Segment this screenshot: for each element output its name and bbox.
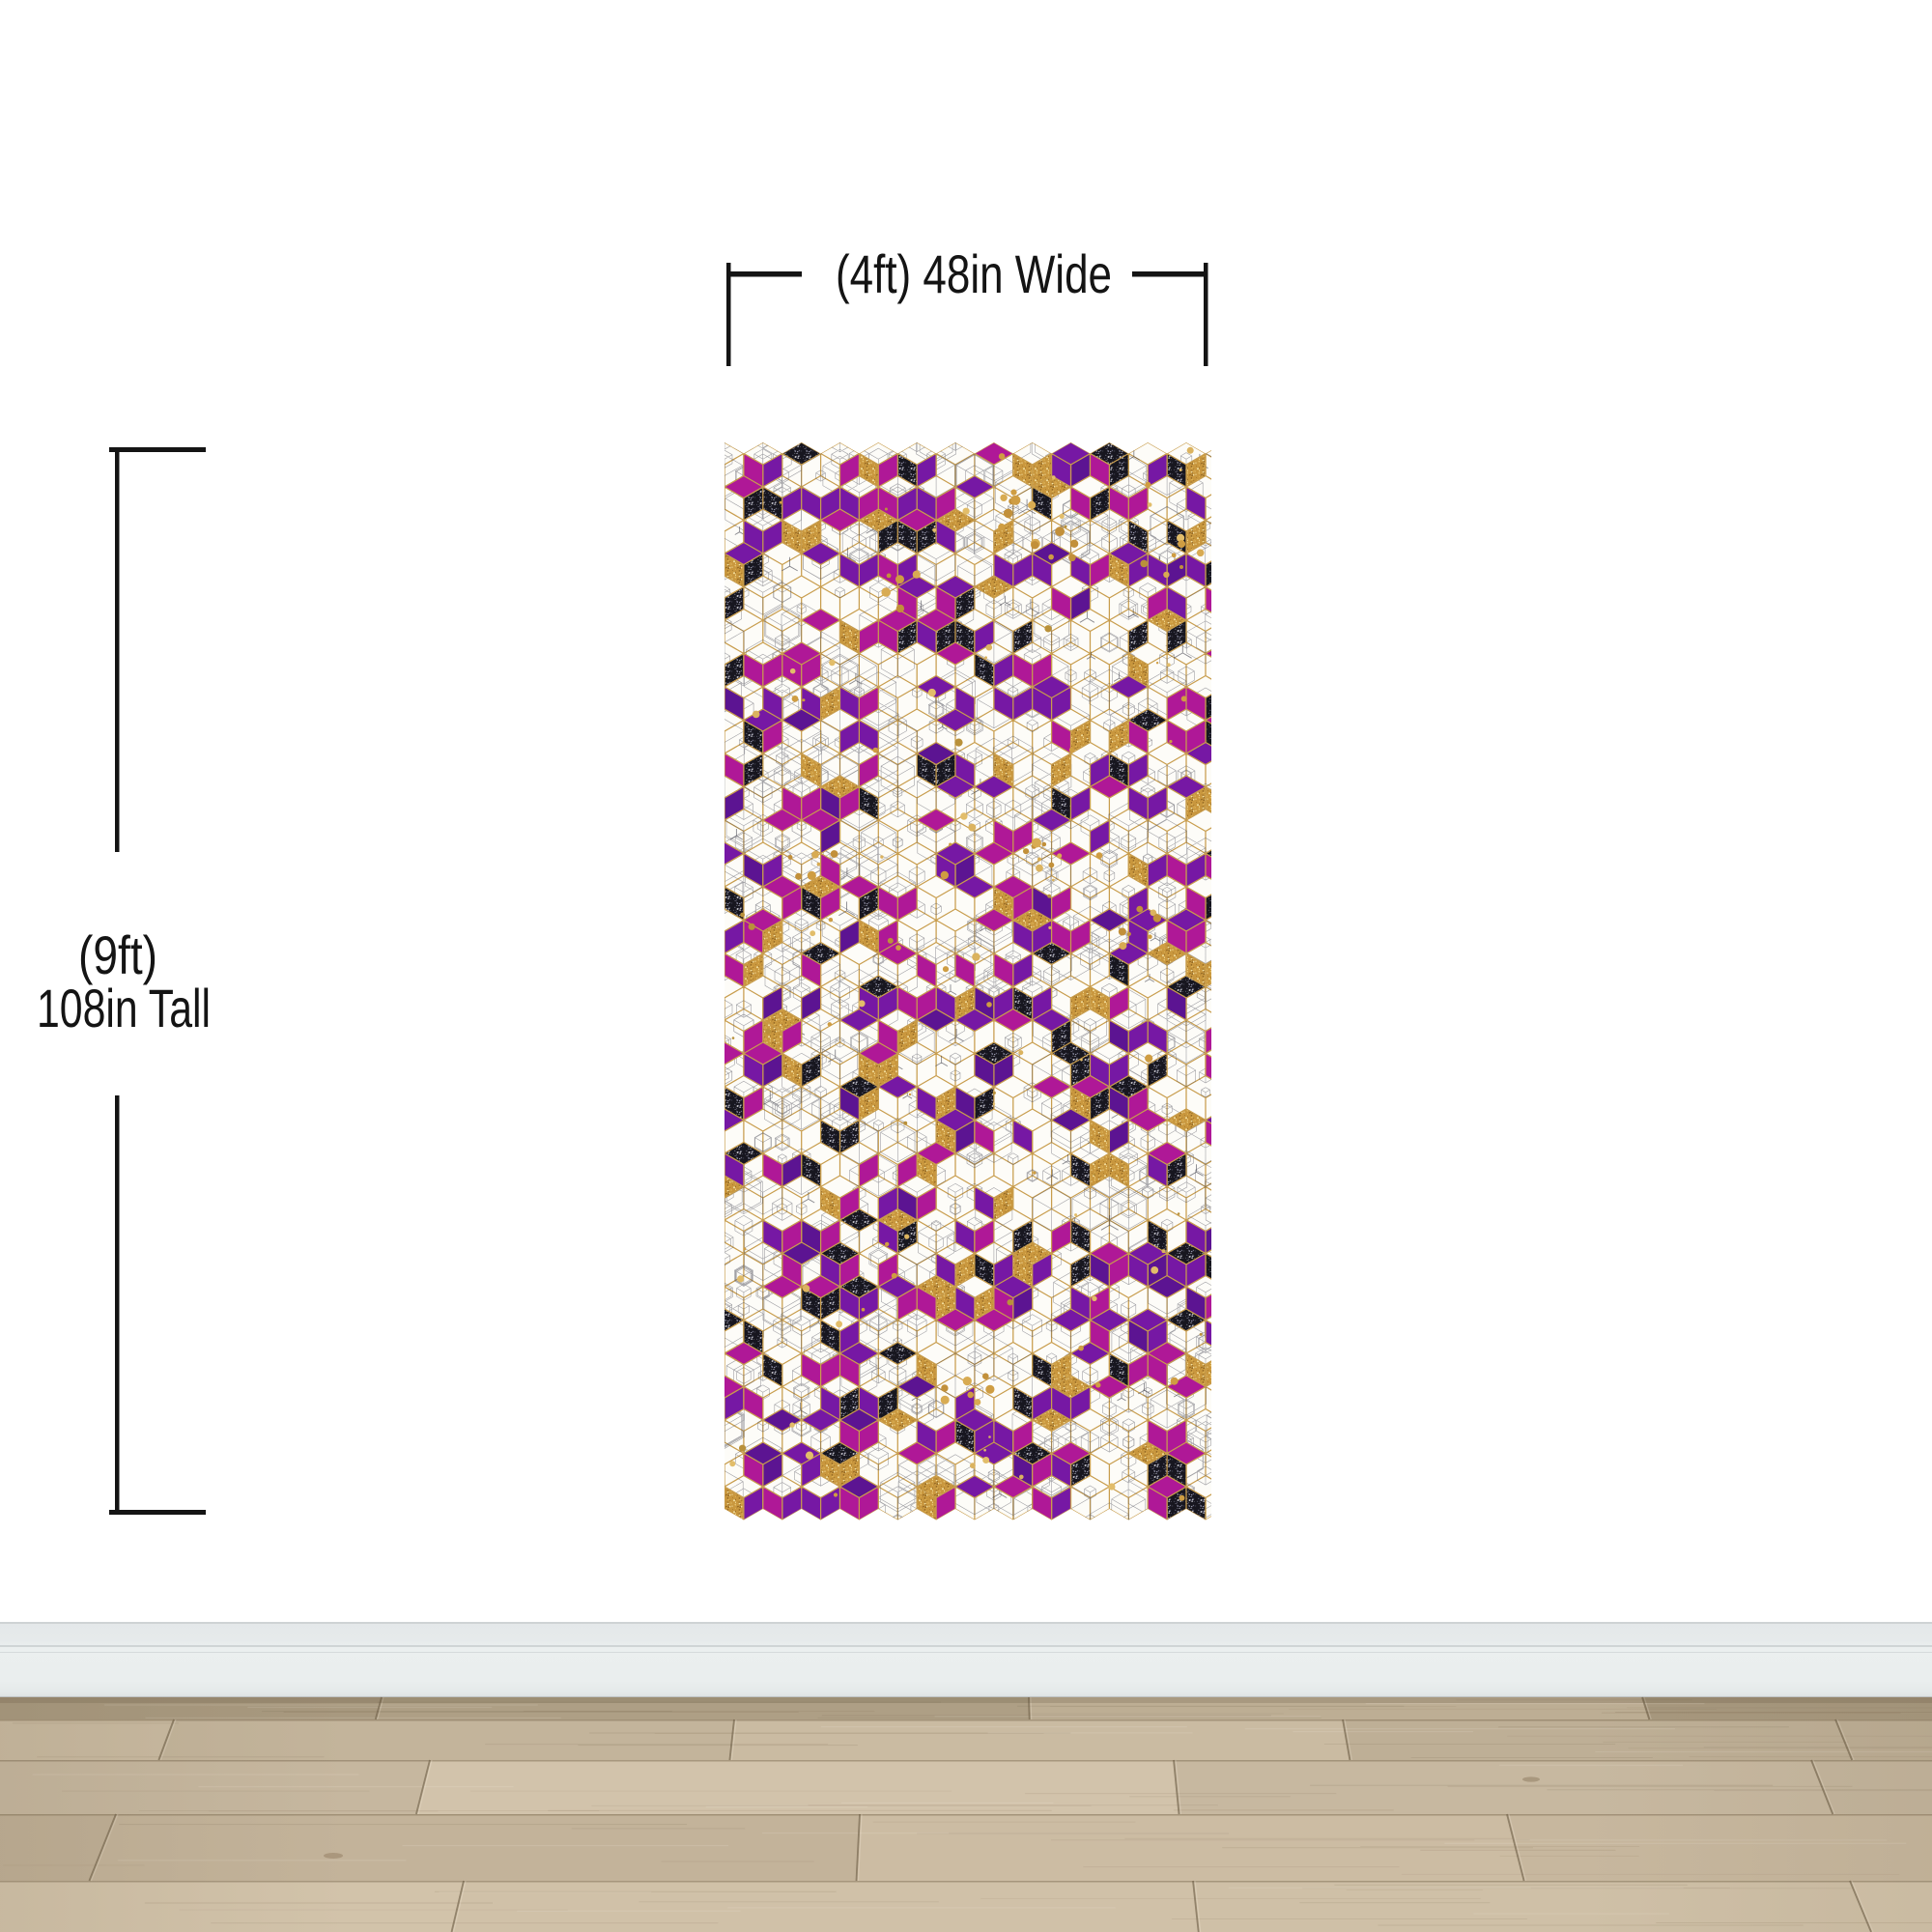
svg-text:(9ft): (9ft) xyxy=(78,924,157,985)
svg-text:(4ft) 48in Wide: (4ft) 48in Wide xyxy=(836,243,1112,304)
svg-text:108in Tall: 108in Tall xyxy=(37,978,211,1038)
